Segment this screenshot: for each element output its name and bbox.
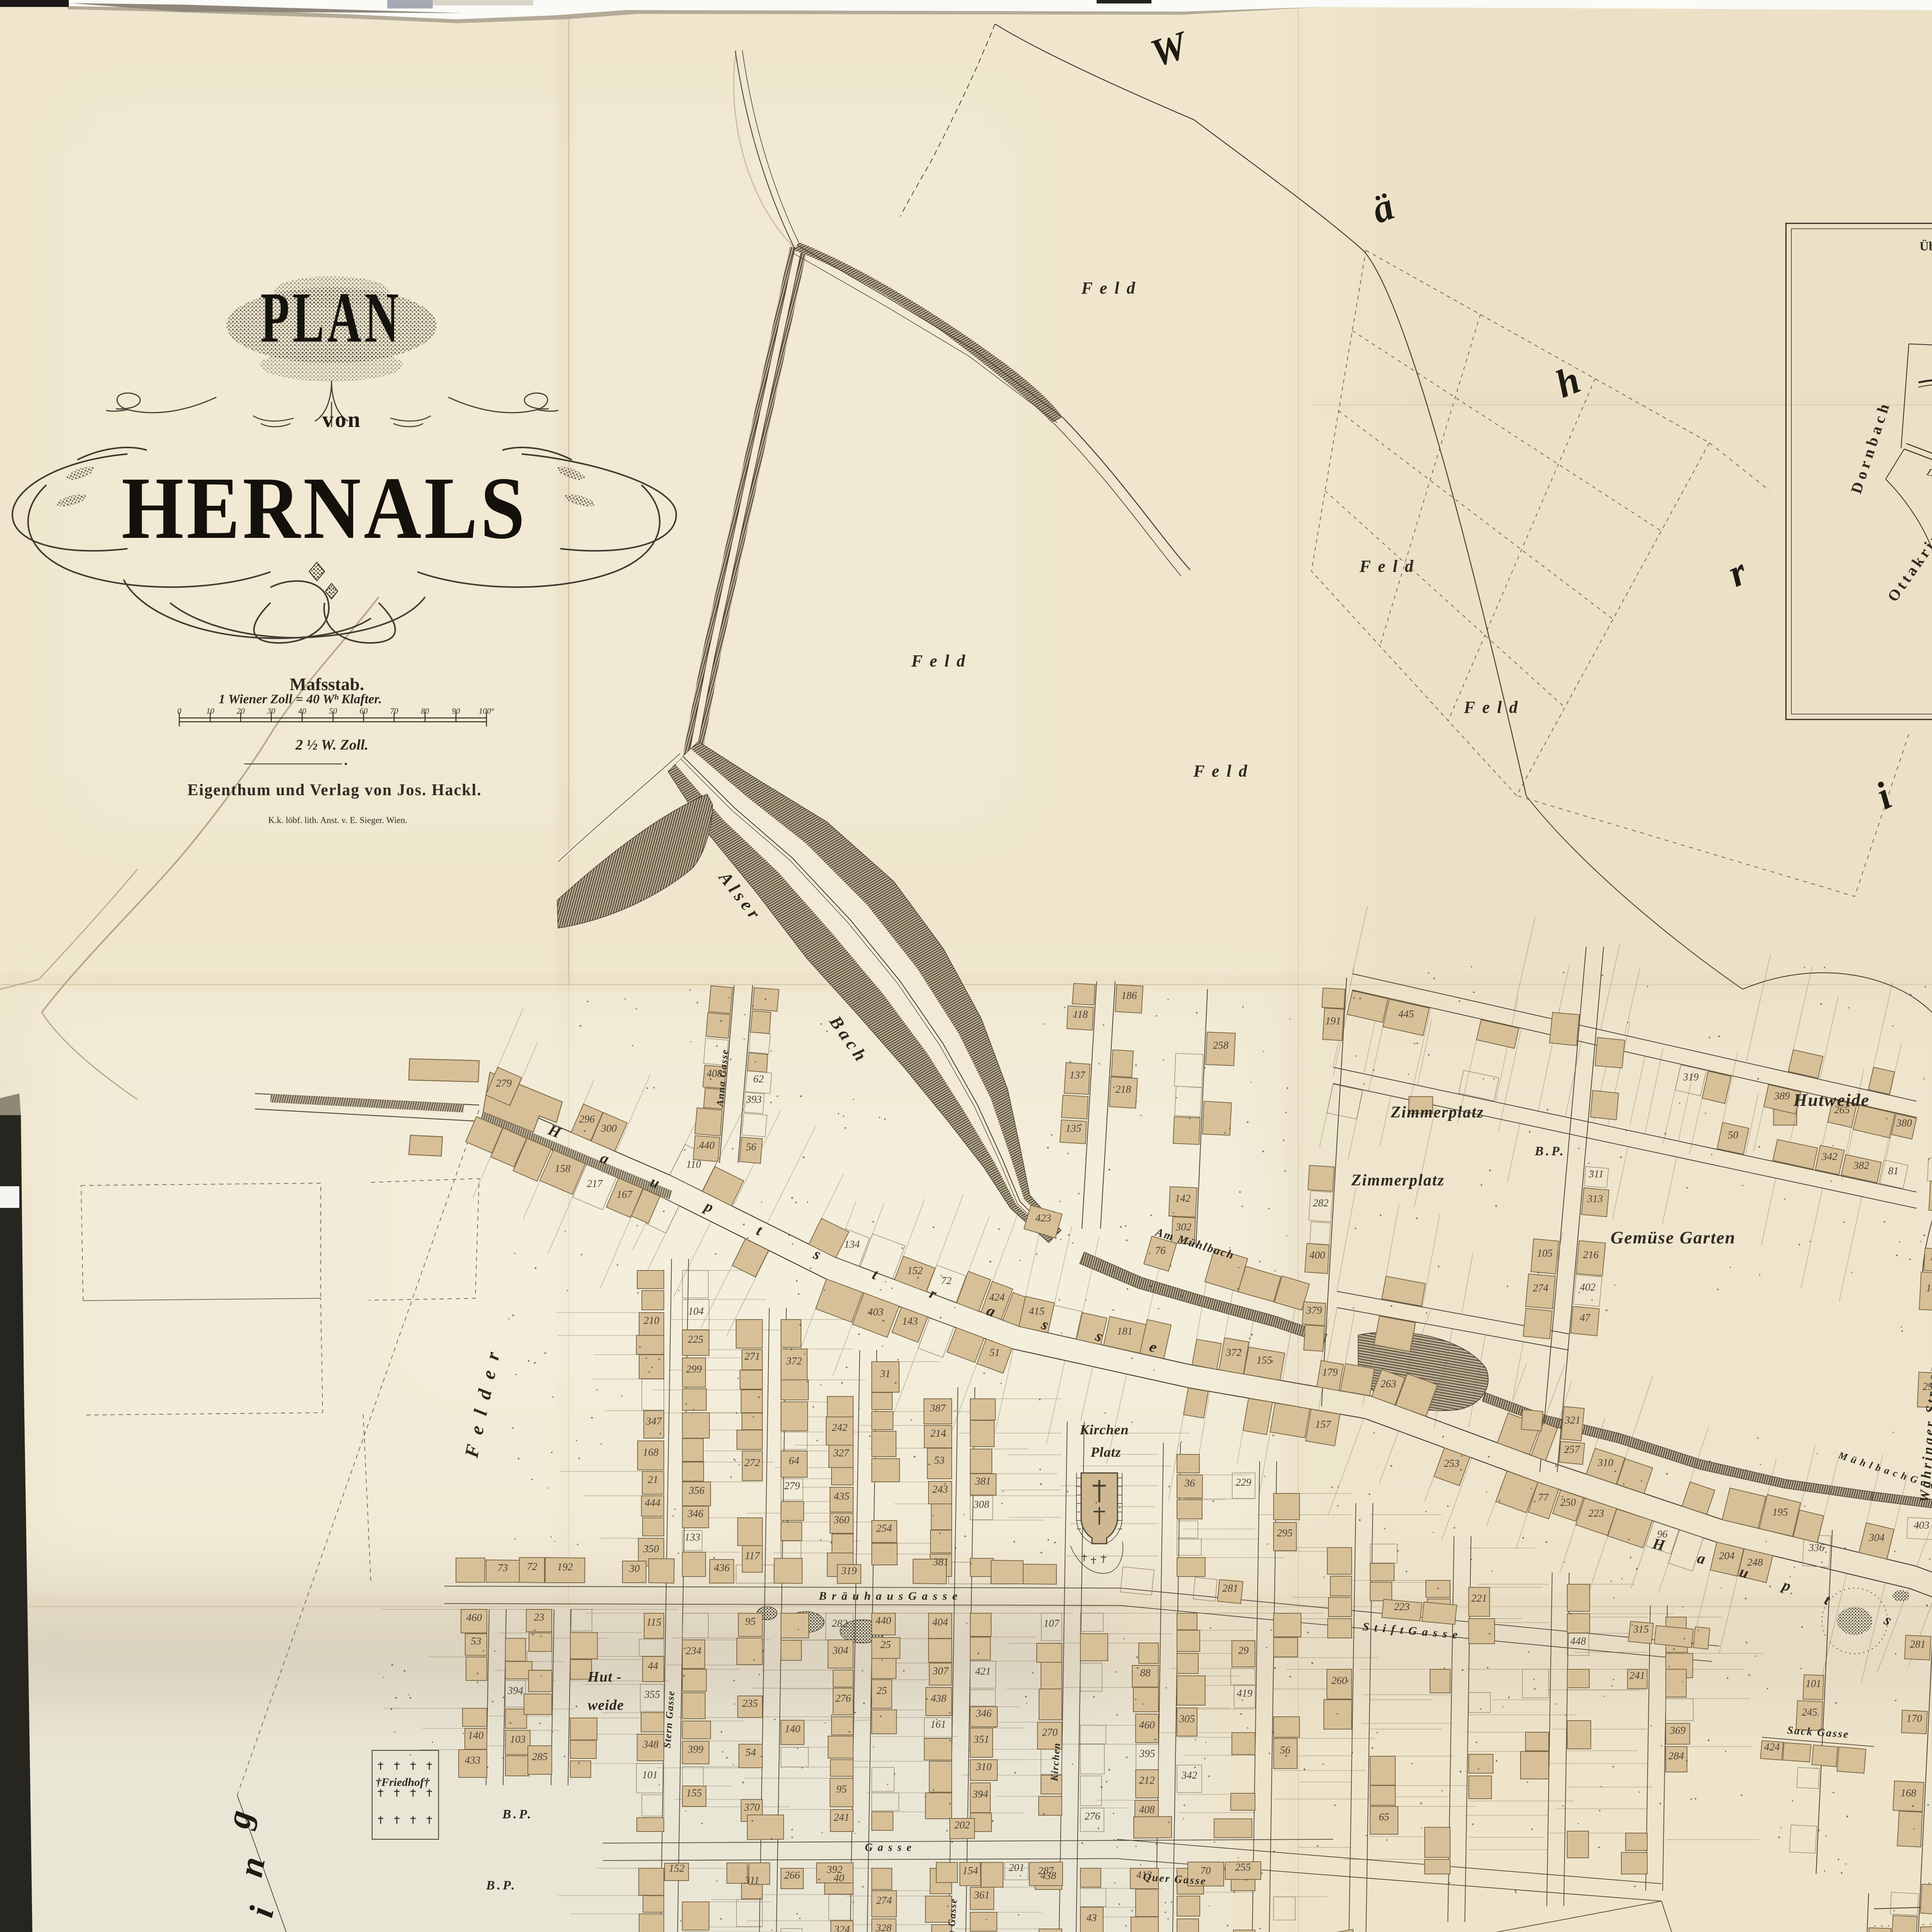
svg-text:31: 31 xyxy=(880,1368,891,1379)
svg-text:43: 43 xyxy=(1087,1912,1097,1923)
svg-text:276: 276 xyxy=(835,1692,851,1704)
svg-text:140: 140 xyxy=(785,1723,801,1735)
svg-text:346: 346 xyxy=(687,1508,704,1519)
svg-text:133: 133 xyxy=(685,1531,701,1543)
svg-text:324: 324 xyxy=(834,1923,850,1932)
svg-text:313: 313 xyxy=(1587,1193,1603,1204)
svg-text:272: 272 xyxy=(745,1457,760,1468)
svg-text:Zimmerplatz: Zimmerplatz xyxy=(1390,1104,1484,1121)
svg-text:B.P.: B.P. xyxy=(502,1807,533,1821)
svg-text:347: 347 xyxy=(646,1415,662,1427)
svg-text:360: 360 xyxy=(833,1514,850,1526)
svg-text:von: von xyxy=(322,407,362,432)
svg-text:53: 53 xyxy=(934,1454,945,1466)
svg-text:80: 80 xyxy=(421,706,430,716)
svg-text:44: 44 xyxy=(648,1660,658,1672)
svg-text:279: 279 xyxy=(784,1480,800,1492)
svg-text:214: 214 xyxy=(930,1427,946,1439)
svg-text:210: 210 xyxy=(644,1315,660,1326)
svg-text:29: 29 xyxy=(1238,1645,1249,1656)
svg-text:62: 62 xyxy=(753,1073,764,1085)
svg-text:348: 348 xyxy=(643,1738,659,1750)
svg-text:142: 142 xyxy=(1175,1192,1191,1204)
svg-text:168: 168 xyxy=(1901,1787,1917,1799)
svg-text:76: 76 xyxy=(1155,1245,1166,1256)
svg-text:F e l d: F e l d xyxy=(1081,279,1136,298)
svg-text:419: 419 xyxy=(1237,1687,1253,1699)
svg-text:155: 155 xyxy=(1257,1354,1272,1366)
svg-text:229: 229 xyxy=(1236,1476,1252,1488)
svg-text:310: 310 xyxy=(976,1761,992,1772)
svg-text:104: 104 xyxy=(688,1305,704,1317)
svg-text:114: 114 xyxy=(1930,1251,1932,1262)
svg-text:77: 77 xyxy=(1538,1492,1549,1503)
svg-text:212: 212 xyxy=(1139,1774,1155,1786)
svg-text:305: 305 xyxy=(1179,1713,1195,1725)
svg-text:115: 115 xyxy=(646,1616,662,1628)
svg-text:161: 161 xyxy=(930,1718,946,1730)
svg-text:271: 271 xyxy=(745,1350,760,1362)
svg-text:299: 299 xyxy=(686,1363,702,1375)
svg-text:225: 225 xyxy=(688,1333,704,1345)
svg-text:Eigenthum und Verlag von Jos.: Eigenthum und Verlag von Jos. Hackl. xyxy=(187,781,482,799)
svg-text:204: 204 xyxy=(1719,1550,1735,1561)
svg-text:21: 21 xyxy=(648,1474,658,1485)
svg-text:382: 382 xyxy=(1853,1160,1869,1171)
svg-text:65: 65 xyxy=(1379,1811,1389,1823)
svg-text:395: 395 xyxy=(1139,1748,1155,1759)
svg-text:103: 103 xyxy=(510,1733,526,1745)
svg-text:274: 274 xyxy=(876,1895,892,1906)
svg-text:36: 36 xyxy=(1184,1477,1196,1489)
svg-text:445: 445 xyxy=(1398,1008,1414,1020)
svg-text:310: 310 xyxy=(1597,1457,1614,1468)
svg-text:274: 274 xyxy=(1533,1282,1549,1294)
svg-text:285: 285 xyxy=(532,1751,548,1762)
svg-text:235: 235 xyxy=(742,1697,758,1709)
svg-text:100°: 100° xyxy=(479,706,495,716)
svg-text:460: 460 xyxy=(1139,1719,1155,1731)
svg-text:81: 81 xyxy=(1888,1165,1899,1177)
svg-text:134: 134 xyxy=(844,1238,860,1250)
svg-text:25: 25 xyxy=(877,1685,887,1696)
svg-text:90: 90 xyxy=(452,706,461,716)
svg-text:255: 255 xyxy=(1235,1861,1251,1873)
svg-text:73: 73 xyxy=(498,1562,508,1573)
svg-text:394: 394 xyxy=(972,1788,988,1800)
svg-text:351: 351 xyxy=(973,1733,990,1745)
svg-text:387: 387 xyxy=(930,1402,946,1414)
svg-text:218: 218 xyxy=(1116,1083,1131,1095)
svg-text:10: 10 xyxy=(206,706,215,716)
svg-text:195: 195 xyxy=(1772,1506,1788,1518)
svg-text:250: 250 xyxy=(1560,1497,1576,1508)
svg-text:304: 304 xyxy=(1869,1532,1885,1543)
svg-text:423: 423 xyxy=(1036,1212,1051,1224)
svg-text:328: 328 xyxy=(876,1922,892,1932)
svg-text:281: 281 xyxy=(1223,1582,1238,1594)
svg-text:311: 311 xyxy=(744,1874,760,1886)
svg-text:217: 217 xyxy=(587,1178,603,1189)
svg-text:Gemüse Garten: Gemüse Garten xyxy=(1611,1228,1736,1247)
svg-text:191: 191 xyxy=(1325,1015,1341,1027)
svg-text:47: 47 xyxy=(1580,1312,1591,1323)
svg-text:101: 101 xyxy=(1806,1678,1821,1689)
svg-text:424: 424 xyxy=(1764,1741,1780,1753)
svg-text:281: 281 xyxy=(1910,1638,1926,1650)
svg-text:260: 260 xyxy=(1332,1675,1347,1686)
svg-text:Platz: Platz xyxy=(1090,1444,1121,1460)
svg-text:381: 381 xyxy=(933,1556,949,1568)
svg-text:HERNALS: HERNALS xyxy=(121,459,527,557)
svg-text:192: 192 xyxy=(557,1561,573,1573)
svg-text:372: 372 xyxy=(786,1355,802,1367)
svg-text:394: 394 xyxy=(507,1685,524,1696)
svg-text:54: 54 xyxy=(746,1747,756,1758)
svg-text:295: 295 xyxy=(1277,1527,1293,1539)
svg-text:K.k. löbf. lith. Anst. v. E. S: K.k. löbf. lith. Anst. v. E. Sieger. Wie… xyxy=(268,815,407,825)
svg-text:342: 342 xyxy=(1181,1769,1197,1781)
svg-text:weide: weide xyxy=(588,1697,624,1713)
svg-text:B.P.: B.P. xyxy=(1534,1144,1566,1158)
svg-text:140: 140 xyxy=(468,1730,484,1741)
svg-text:201: 201 xyxy=(1009,1862,1025,1873)
svg-text:53: 53 xyxy=(471,1635,481,1647)
svg-text:372: 372 xyxy=(1226,1347,1242,1358)
svg-text:253: 253 xyxy=(1444,1458,1460,1469)
svg-text:179: 179 xyxy=(1322,1366,1338,1378)
svg-text:438: 438 xyxy=(931,1692,947,1704)
svg-text:223: 223 xyxy=(1588,1507,1604,1519)
svg-text:282: 282 xyxy=(832,1617,848,1629)
svg-text:40: 40 xyxy=(298,706,307,716)
svg-text:181: 181 xyxy=(1117,1325,1133,1337)
svg-text:308: 308 xyxy=(973,1498,990,1510)
svg-text:234: 234 xyxy=(686,1645,702,1656)
svg-text:Zimmerplatz: Zimmerplatz xyxy=(1351,1172,1444,1189)
svg-text:370: 370 xyxy=(744,1801,760,1813)
svg-text:433: 433 xyxy=(465,1754,481,1766)
svg-text:51: 51 xyxy=(990,1347,1000,1358)
svg-text:241: 241 xyxy=(834,1811,850,1823)
svg-text:336: 336 xyxy=(783,1930,799,1932)
svg-text:300: 300 xyxy=(601,1122,617,1134)
svg-text:356: 356 xyxy=(689,1485,705,1496)
svg-text:319: 319 xyxy=(841,1565,857,1577)
svg-text:315: 315 xyxy=(1633,1623,1649,1635)
svg-text:399: 399 xyxy=(687,1743,704,1755)
svg-text:30: 30 xyxy=(267,706,276,716)
svg-text:404: 404 xyxy=(932,1616,948,1628)
svg-text:440: 440 xyxy=(699,1139,715,1151)
svg-text:421: 421 xyxy=(975,1665,991,1677)
svg-text:408: 408 xyxy=(1139,1804,1155,1815)
svg-text:B.P.: B.P. xyxy=(486,1878,517,1893)
svg-text:436: 436 xyxy=(714,1562,730,1573)
svg-text:402: 402 xyxy=(1580,1281,1596,1293)
svg-text:B r ä u h a u s G a s s e: B r ä u h a u s G a s s e xyxy=(818,1590,959,1602)
svg-text:254: 254 xyxy=(876,1522,892,1534)
svg-text:243: 243 xyxy=(932,1483,948,1495)
svg-text:279: 279 xyxy=(496,1077,512,1089)
svg-text:167: 167 xyxy=(617,1189,633,1200)
svg-text:105: 105 xyxy=(1537,1247,1553,1259)
svg-text:223: 223 xyxy=(1394,1601,1410,1612)
svg-text:319: 319 xyxy=(1683,1071,1699,1083)
svg-text:393: 393 xyxy=(746,1094,762,1105)
svg-text:50: 50 xyxy=(329,706,338,716)
svg-text:403: 403 xyxy=(1914,1519,1930,1531)
svg-text:245: 245 xyxy=(1802,1706,1818,1718)
svg-text:392: 392 xyxy=(827,1864,843,1875)
svg-text:435: 435 xyxy=(834,1490,850,1502)
svg-text:152: 152 xyxy=(907,1265,923,1276)
svg-text:70: 70 xyxy=(1201,1865,1211,1876)
svg-text:270: 270 xyxy=(1042,1726,1058,1738)
svg-text:30: 30 xyxy=(629,1563,640,1574)
svg-text:216: 216 xyxy=(1583,1249,1599,1260)
svg-text:444: 444 xyxy=(645,1497,661,1509)
svg-text:186: 186 xyxy=(1121,990,1137,1001)
svg-text:95: 95 xyxy=(745,1616,756,1627)
svg-text:F e l d: F e l d xyxy=(1193,762,1248,781)
svg-text:336: 336 xyxy=(1808,1542,1825,1553)
svg-text:PLAN: PLAN xyxy=(260,278,402,357)
svg-text:389: 389 xyxy=(1774,1090,1790,1102)
svg-text:2 ½ W. Zoll.: 2 ½ W. Zoll. xyxy=(295,737,369,753)
svg-text:415: 415 xyxy=(1029,1305,1045,1317)
svg-text:F e l d: F e l d xyxy=(911,651,966,670)
svg-text:266: 266 xyxy=(784,1869,800,1881)
svg-text:50: 50 xyxy=(1728,1129,1739,1141)
svg-text:158: 158 xyxy=(555,1163,571,1174)
svg-text:72: 72 xyxy=(527,1561,537,1572)
svg-text:72: 72 xyxy=(941,1275,952,1286)
svg-text:184: 184 xyxy=(1926,1282,1932,1294)
svg-text:155: 155 xyxy=(686,1787,702,1799)
svg-text:321: 321 xyxy=(1565,1414,1581,1426)
svg-text:202: 202 xyxy=(954,1819,970,1831)
svg-text:Mafsstab.: Mafsstab. xyxy=(290,674,364,694)
svg-text:70: 70 xyxy=(390,706,399,716)
svg-text:110: 110 xyxy=(686,1158,701,1170)
svg-text:23: 23 xyxy=(534,1611,544,1623)
svg-text:342: 342 xyxy=(1821,1151,1838,1162)
svg-text:60: 60 xyxy=(360,706,368,716)
svg-text:403: 403 xyxy=(868,1306,884,1318)
svg-text:Hut -: Hut - xyxy=(587,1669,622,1685)
svg-text:346: 346 xyxy=(976,1708,992,1719)
svg-text:F e l d: F e l d xyxy=(1463,698,1519,717)
svg-text:361: 361 xyxy=(974,1889,990,1901)
svg-text:241: 241 xyxy=(1629,1670,1645,1681)
svg-text:380: 380 xyxy=(1896,1117,1912,1129)
svg-text:Übersichts-Plan eines Theiles: Übersichts-Plan eines Theiles der Gemein… xyxy=(1920,239,1932,253)
svg-text:170: 170 xyxy=(1906,1713,1922,1724)
svg-text:56: 56 xyxy=(1280,1744,1291,1756)
svg-text:258: 258 xyxy=(1213,1039,1229,1051)
svg-text:355: 355 xyxy=(644,1689,660,1700)
svg-text:381: 381 xyxy=(975,1475,991,1487)
svg-text:304: 304 xyxy=(832,1645,849,1656)
svg-text:242: 242 xyxy=(832,1422,848,1433)
svg-text:263: 263 xyxy=(1381,1378,1396,1389)
svg-text:369: 369 xyxy=(1670,1725,1686,1736)
svg-text:282: 282 xyxy=(1313,1197,1329,1209)
svg-text:350: 350 xyxy=(643,1543,659,1554)
svg-text:307: 307 xyxy=(932,1665,949,1677)
svg-text:135: 135 xyxy=(1066,1122,1082,1134)
svg-text:F e l d: F e l d xyxy=(1359,557,1415,576)
svg-text:118: 118 xyxy=(1073,1009,1088,1020)
svg-text:Kirchen: Kirchen xyxy=(1079,1422,1129,1437)
svg-text:117: 117 xyxy=(745,1550,760,1561)
svg-text:143: 143 xyxy=(902,1315,918,1327)
svg-text:154: 154 xyxy=(963,1865,978,1876)
svg-text:152: 152 xyxy=(669,1862,685,1874)
svg-text:287: 287 xyxy=(1038,1865,1054,1876)
svg-text:302: 302 xyxy=(1175,1221,1192,1233)
svg-text:460: 460 xyxy=(466,1612,482,1623)
svg-text:296: 296 xyxy=(579,1113,595,1125)
svg-text:168: 168 xyxy=(643,1446,659,1458)
svg-text:1 Wiener Zoll = 40 Wʰ Klaf: 1 Wiener Zoll = 40 Wʰ Klafter. xyxy=(219,692,382,706)
svg-text:157: 157 xyxy=(1315,1418,1332,1430)
svg-text:221: 221 xyxy=(1471,1592,1487,1604)
svg-text:101: 101 xyxy=(642,1769,658,1781)
svg-text:284: 284 xyxy=(1668,1750,1684,1762)
svg-text:25: 25 xyxy=(881,1639,891,1650)
svg-text:56: 56 xyxy=(746,1141,757,1153)
svg-text:20: 20 xyxy=(237,706,245,716)
svg-text:137: 137 xyxy=(1070,1069,1086,1081)
svg-text:379: 379 xyxy=(1306,1304,1322,1316)
svg-text:276: 276 xyxy=(1085,1810,1100,1822)
svg-text:†Friedhof†: †Friedhof† xyxy=(376,1776,430,1789)
svg-text:88: 88 xyxy=(1140,1667,1151,1679)
svg-text:107: 107 xyxy=(1044,1617,1060,1629)
svg-text:448: 448 xyxy=(1570,1635,1586,1647)
svg-text:G a s s e: G a s s e xyxy=(865,1842,912,1854)
svg-text:311: 311 xyxy=(1588,1168,1604,1180)
svg-text:440: 440 xyxy=(876,1615,891,1626)
svg-text:95: 95 xyxy=(837,1783,847,1795)
svg-text:Hutweide: Hutweide xyxy=(1793,1090,1869,1110)
svg-text:327: 327 xyxy=(833,1447,850,1459)
svg-text:64: 64 xyxy=(789,1455,799,1466)
svg-text:0: 0 xyxy=(177,706,182,716)
svg-text:400: 400 xyxy=(1310,1249,1325,1261)
